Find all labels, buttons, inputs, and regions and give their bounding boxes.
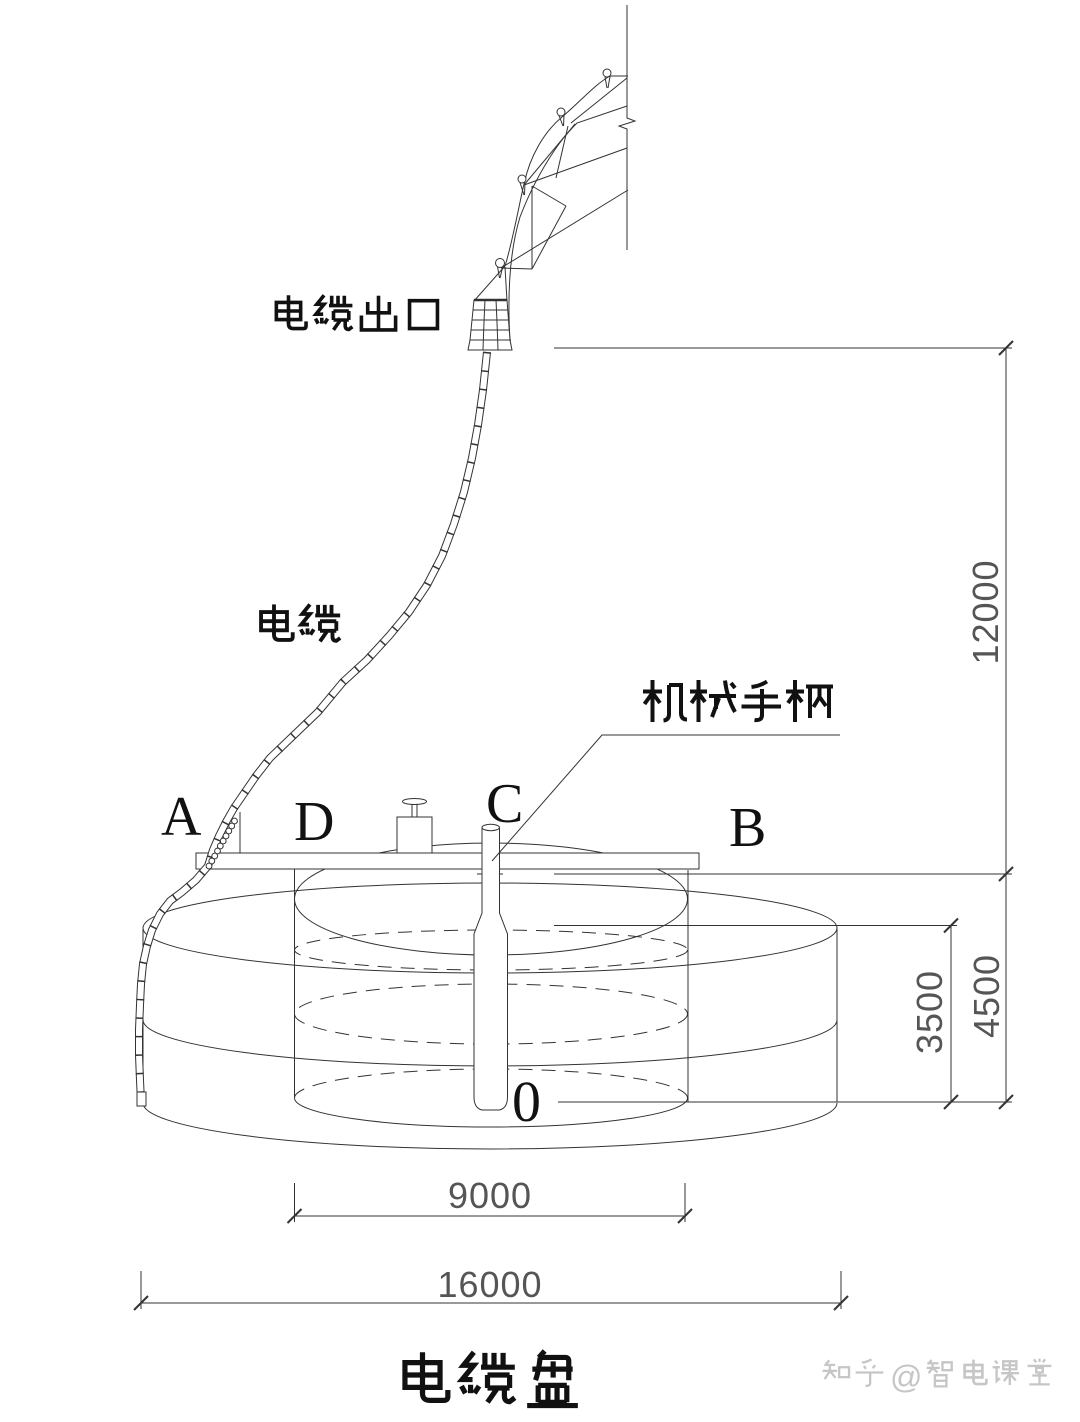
svg-text:B: B (729, 797, 766, 859)
svg-text:12000: 12000 (965, 559, 1006, 664)
svg-text:A: A (161, 786, 202, 848)
svg-text:4500: 4500 (966, 954, 1007, 1038)
svg-text:C: C (486, 773, 523, 835)
svg-text:9000: 9000 (448, 1175, 532, 1216)
svg-text:3500: 3500 (909, 970, 950, 1054)
svg-text:0: 0 (512, 1069, 541, 1134)
svg-text:@: @ (890, 1359, 922, 1395)
svg-text:16000: 16000 (437, 1264, 542, 1305)
svg-text:D: D (294, 791, 334, 853)
